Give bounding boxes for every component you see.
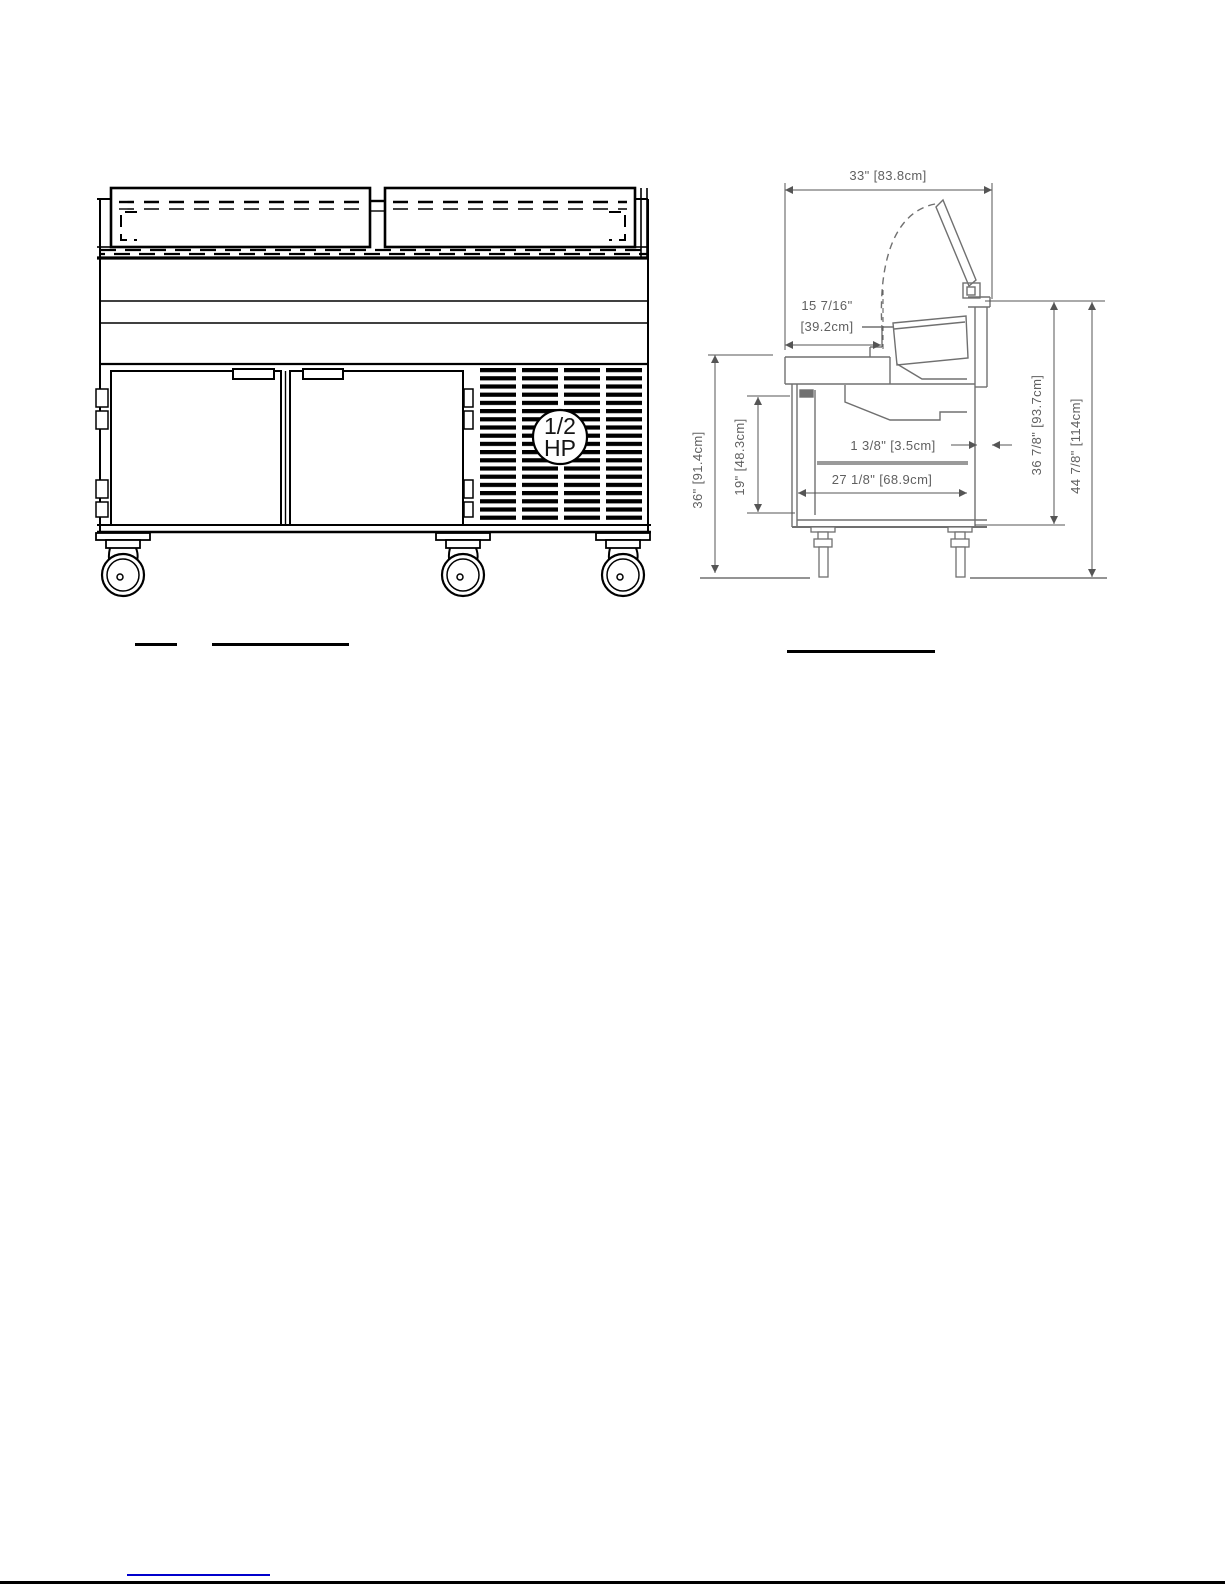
leg-front (811, 527, 835, 577)
lid-swing-arc (881, 204, 935, 330)
dim-cutting-board-label-1: 15 7/16" (801, 298, 852, 313)
leg-back (948, 527, 972, 577)
compressor-grille: 1/2 HP (480, 368, 642, 523)
front-view-caption-underline-short (135, 643, 177, 646)
dim-interior-depth: 27 1/8" [68.9cm] (798, 472, 967, 493)
condiment-rail (97, 188, 648, 259)
left-door (111, 369, 281, 525)
lid-hinge (963, 283, 980, 298)
footer-link-underline[interactable] (127, 1574, 270, 1576)
dim-interior-height: 19" [48.3cm] (732, 396, 795, 513)
front-view-caption-underline (212, 643, 349, 646)
open-lid (881, 200, 980, 330)
dim-interior-depth-label: 27 1/8" [68.9cm] (832, 472, 933, 487)
dim-rail-height: 36 7/8" [93.7cm] (975, 301, 1105, 525)
side-view-drawing: 33" [83.8cm] 15 7/16" [39.2cm] 1 3/8" [3… (680, 150, 1125, 590)
dim-interior-height-label: 19" [48.3cm] (732, 418, 747, 495)
dim-wall-thickness-label: 1 3/8" [3.5cm] (850, 438, 935, 453)
front-view-drawing: 1/2 HP (95, 172, 665, 604)
dim-overall-height-label: 44 7/8" [114cm] (1068, 398, 1083, 494)
left-door-handle (233, 369, 274, 379)
spec-sheet-page: 1/2 HP (0, 0, 1225, 1585)
dim-rail-height-label: 36 7/8" [93.7cm] (1029, 375, 1044, 476)
page-bottom-rule (0, 1581, 1225, 1584)
caster-left (96, 533, 150, 596)
dim-cutting-board: 15 7/16" [39.2cm] (785, 290, 883, 350)
casters (96, 533, 650, 596)
dim-overall-depth-label: 33" [83.8cm] (849, 168, 926, 183)
dim-cutting-board-label-2: [39.2cm] (800, 319, 853, 334)
caster-middle (436, 533, 490, 596)
dim-work-height-label: 36" [91.4cm] (690, 431, 705, 508)
right-door (286, 369, 464, 525)
caster-right (596, 533, 650, 596)
side-legs (700, 527, 1107, 578)
side-view-caption-underline (787, 650, 935, 653)
right-door-handle (303, 369, 343, 379)
dim-overall-height: 44 7/8" [114cm] (1068, 302, 1092, 577)
evaporator-duct (845, 385, 967, 420)
hp-badge-unit: HP (544, 435, 576, 461)
dim-wall-thickness: 1 3/8" [3.5cm] (850, 438, 1012, 453)
